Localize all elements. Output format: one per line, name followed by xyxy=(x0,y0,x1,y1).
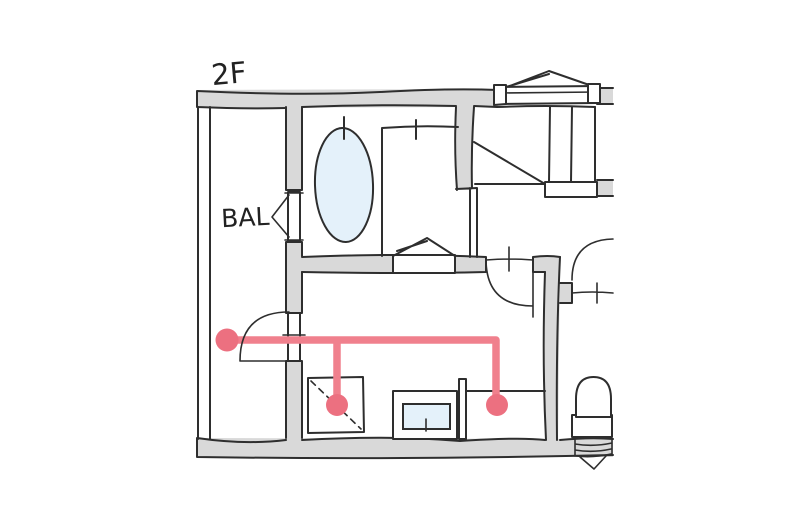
bath-step-gable xyxy=(393,238,455,256)
bathtub xyxy=(313,127,375,243)
wall-stub-stair xyxy=(597,180,613,196)
balcony-label: BAL xyxy=(220,202,270,233)
casement-window-swing xyxy=(272,195,289,237)
wall-left-outline xyxy=(198,107,210,439)
bay-window-cap-right xyxy=(588,84,600,103)
stair-landing xyxy=(545,182,597,197)
bay-window-cap-left xyxy=(494,85,506,105)
stair-treads xyxy=(549,107,595,182)
bay-window-frame xyxy=(497,86,597,104)
bath-step-base xyxy=(393,255,455,273)
stair-direction-line xyxy=(474,142,545,184)
staircase xyxy=(474,107,597,197)
bay-window-mullion xyxy=(497,92,597,93)
route-dot-counter xyxy=(486,394,508,416)
floor-plan-page: 2F BAL xyxy=(0,0,798,532)
bay-window xyxy=(494,71,600,105)
partition-post xyxy=(459,379,466,439)
wall-stub-toilet xyxy=(560,283,572,303)
floor-plan-svg: 2F BAL xyxy=(0,0,798,532)
shower-room-outline xyxy=(382,126,458,256)
casement-window xyxy=(272,192,303,241)
floor-label: 2F xyxy=(210,55,248,92)
bathroom xyxy=(313,117,458,273)
casement-window-frame xyxy=(288,192,300,241)
washroom-door-opening xyxy=(486,247,533,271)
route-dot-balcony xyxy=(216,329,239,352)
toilet-door-opening xyxy=(572,283,613,303)
route-dot-washer xyxy=(326,394,348,416)
wall-bottom xyxy=(197,438,613,457)
wall-balcony-partition xyxy=(286,96,302,444)
toilet-tank xyxy=(572,415,612,437)
toilet-door-swing xyxy=(572,239,613,280)
toilet-bowl xyxy=(576,377,611,417)
